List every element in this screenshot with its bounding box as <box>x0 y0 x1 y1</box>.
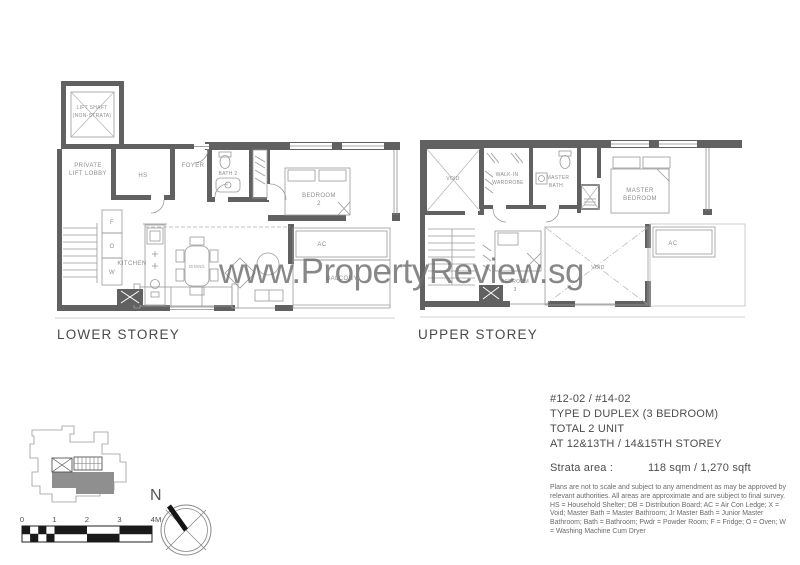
unit-type: TYPE D DUPLEX (3 BEDROOM) <box>550 407 794 422</box>
room-label-ac-upper: AC <box>668 241 677 247</box>
room-label-lift-shaft-2: (NON-STRATA) <box>73 113 112 119</box>
scale-bar-cells <box>22 526 152 542</box>
room-label-bedroom2-2: 2 <box>317 201 321 207</box>
unit-numbers: #12-02 / #14-02 <box>550 392 794 407</box>
appliance-label-oven: O <box>109 244 114 250</box>
total-units: TOTAL 2 UNIT <box>550 422 794 437</box>
strata-area-row: Strata area : 118 sqm / 1,270 sqft <box>550 462 794 474</box>
room-label-bedroom2: BEDROOM <box>302 193 336 199</box>
room-label-master-bedroom: MASTER <box>626 188 654 194</box>
storey-range: AT 12&13TH / 14&15TH STOREY <box>550 437 794 452</box>
legend-text: HS = Household Shelter; DB = Distributio… <box>550 502 790 537</box>
room-label-lobby-2: LIFT LOBBY <box>69 171 107 177</box>
compass-icon <box>161 505 211 555</box>
room-label-kitchen: KITCHEN <box>117 261 146 267</box>
scale-label-0: 0 <box>20 515 24 524</box>
wardrobe-icon <box>253 150 267 198</box>
room-label-bath2: BATH 2 <box>219 171 238 177</box>
strata-area-label: Strata area : <box>550 462 648 474</box>
room-label-lift-shaft: LIFT SHAFT <box>77 105 108 111</box>
room-label-dining: DINING <box>189 264 205 269</box>
room-label-master-bedroom-2: BEDROOM <box>623 196 657 202</box>
kitchen-counter-icon <box>143 224 167 305</box>
appliance-label-fridge: F <box>110 220 114 226</box>
watermark: www.PropertyReview.sg <box>219 252 584 292</box>
upper-storey-plan: VOID WALK-IN WARDROBE MASTER BATH MASTER… <box>415 133 750 325</box>
room-label-hs: HS <box>138 173 147 179</box>
upper-storey-title: UPPER STOREY <box>418 327 538 342</box>
site-key-plan <box>16 424 146 516</box>
master-bed-icon <box>611 157 670 213</box>
room-label-foyer: FOYER <box>182 163 205 169</box>
ac-ledge-upper <box>650 224 745 306</box>
scale-label-2: 2 <box>85 515 89 524</box>
room-label-master-bath-2: BATH <box>549 183 563 189</box>
duct-shaft-icon <box>581 185 599 209</box>
site-unit-highlight <box>52 472 114 494</box>
stairs-lower-icon <box>63 223 97 283</box>
room-label-void-main: VOID <box>591 265 605 271</box>
room-label-lobby: PRIVATE <box>74 163 102 169</box>
strata-area-value: 118 sqm / 1,270 sqft <box>648 462 751 474</box>
room-label-ac-lower: AC <box>317 242 326 248</box>
bed2-icon <box>285 168 350 215</box>
room-label-walkin: WALK-IN <box>496 172 519 178</box>
disclaimer-text: Plans are not to scale and subject to an… <box>550 484 790 502</box>
unit-info-block: #12-02 / #14-02 TYPE D DUPLEX (3 BEDROOM… <box>550 392 794 537</box>
north-compass: N <box>142 482 226 565</box>
north-label: N <box>150 487 162 504</box>
scale-label-3: 3 <box>117 515 121 524</box>
room-label-void-top: VOID <box>446 176 460 182</box>
db-box-icon <box>117 289 143 305</box>
floorplan-page: LIFT SHAFT (NON-STRATA) PRIVATE LIFT LOB… <box>0 0 800 565</box>
appliance-label-washer: W <box>109 270 115 276</box>
lower-storey-title: LOWER STOREY <box>57 327 180 342</box>
scale-label-1: 1 <box>52 515 56 524</box>
site-core-icon <box>52 457 102 472</box>
room-label-walkin-2: WARDROBE <box>492 180 524 186</box>
room-label-master-bath: MASTER <box>547 175 570 181</box>
